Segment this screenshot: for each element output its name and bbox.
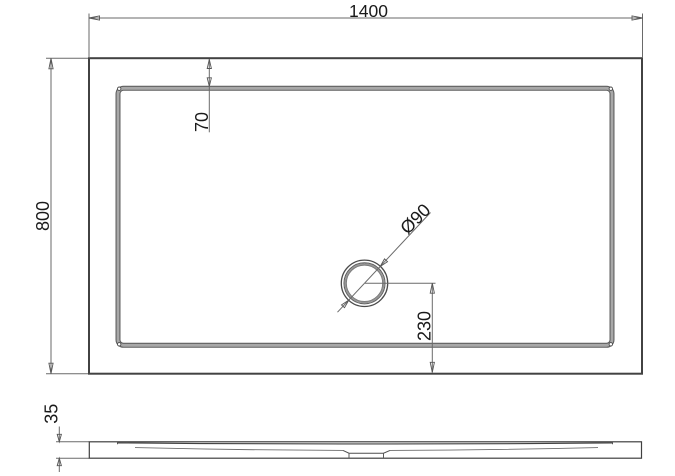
svg-text:230: 230 <box>414 311 434 341</box>
svg-text:35: 35 <box>41 404 61 424</box>
svg-text:Ø90: Ø90 <box>396 200 434 238</box>
svg-text:70: 70 <box>192 112 212 132</box>
svg-text:800: 800 <box>33 201 53 231</box>
svg-text:1400: 1400 <box>349 1 388 21</box>
